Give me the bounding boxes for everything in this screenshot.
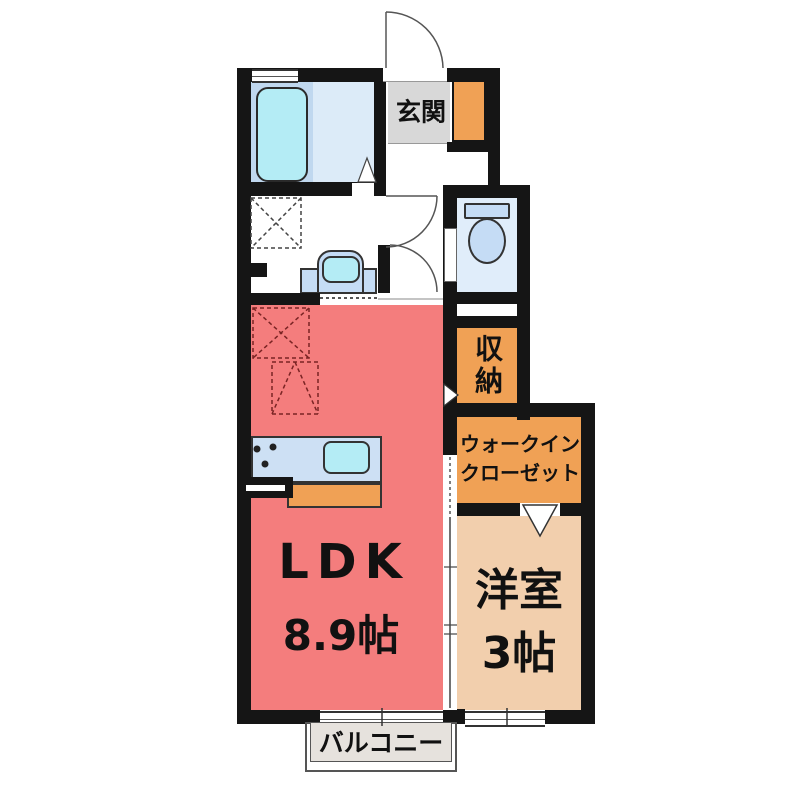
ldk-label: LDK bbox=[278, 538, 410, 586]
western-room-size-label: 3帖 bbox=[482, 632, 557, 676]
ldk-size-label: 8.9帖 bbox=[283, 615, 399, 657]
bath-door-marker bbox=[358, 158, 376, 182]
entrance-door-arc bbox=[386, 12, 443, 68]
cupboard-space bbox=[272, 362, 318, 414]
storage-label: 収納 bbox=[473, 334, 501, 398]
genkan-label: 玄関 bbox=[396, 100, 446, 125]
balcony-label: バルコニー bbox=[319, 731, 444, 756]
western-door-marker bbox=[523, 505, 557, 536]
storage-door-marker bbox=[444, 384, 458, 406]
wic-label-line1: ウォークイン bbox=[460, 434, 580, 454]
washroom-door-arc bbox=[386, 196, 437, 247]
stove-burners-icon bbox=[254, 444, 277, 468]
wic-label-line2: クローゼット bbox=[460, 463, 580, 483]
hall-door-arc bbox=[390, 245, 437, 292]
western-room-label: 洋室 bbox=[475, 569, 563, 613]
washing-machine-space bbox=[251, 198, 301, 248]
refrigerator-space bbox=[253, 308, 309, 358]
floor-plan: 玄関 収納 ウォークイン クローゼット LDK 8.9帖 洋室 3帖 バルコニー bbox=[0, 0, 800, 800]
